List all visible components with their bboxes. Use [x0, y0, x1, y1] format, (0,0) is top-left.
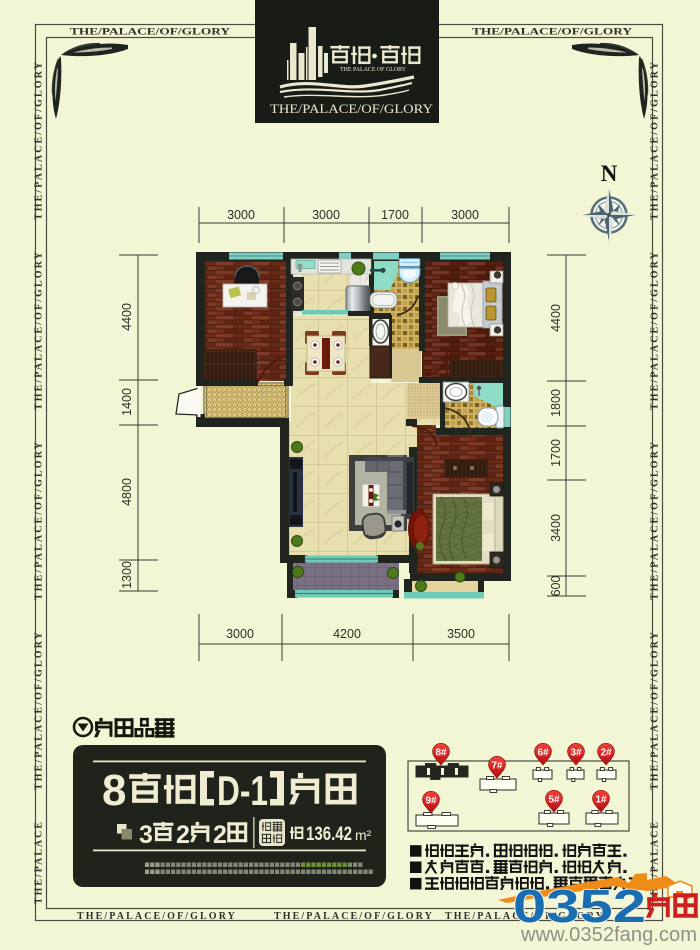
svg-text:THE/PALACE: THE/PALACE — [34, 820, 45, 904]
svg-text:4200: 4200 — [333, 627, 361, 641]
svg-text:1#: 1# — [595, 795, 607, 806]
svg-text:2: 2 — [213, 821, 227, 849]
svg-text:THE PALACE OF GLORY: THE PALACE OF GLORY — [340, 66, 406, 73]
svg-text:THE/PALACE/OF/GLORY: THE/PALACE/OF/GLORY — [650, 630, 661, 790]
svg-text:4800: 4800 — [120, 478, 134, 506]
svg-text:3500: 3500 — [447, 627, 475, 641]
svg-text:THE/PALACE/OF/GLORY: THE/PALACE/OF/GLORY — [34, 440, 45, 600]
svg-text:8: 8 — [102, 766, 126, 815]
svg-text:3000: 3000 — [226, 627, 254, 641]
svg-text:THE/PALACE: THE/PALACE — [650, 820, 661, 904]
svg-text:THE/PALACE/OF/GLORY: THE/PALACE/OF/GLORY — [650, 60, 661, 220]
svg-text:1700: 1700 — [381, 208, 409, 222]
svg-text:THE/PALACE/OF/GLORY: THE/PALACE/OF/GLORY — [34, 250, 45, 410]
svg-text:D-1: D-1 — [217, 767, 268, 814]
svg-text:3: 3 — [139, 821, 153, 849]
svg-text:1300: 1300 — [120, 561, 134, 589]
svg-text:3000: 3000 — [227, 208, 255, 222]
svg-text:9#: 9# — [425, 796, 437, 807]
svg-text:1800: 1800 — [549, 389, 563, 417]
svg-text:8#: 8# — [435, 748, 447, 759]
svg-text:1700: 1700 — [549, 439, 563, 467]
svg-text:THE/PALACE/OF/GLORY: THE/PALACE/OF/GLORY — [650, 440, 661, 600]
svg-text:7#: 7# — [491, 761, 503, 772]
svg-text:4400: 4400 — [549, 304, 563, 332]
svg-text:3000: 3000 — [312, 208, 340, 222]
svg-text:THE/PALACE/OF/GLORY: THE/PALACE/OF/GLORY — [34, 60, 45, 220]
svg-text:THE/PALACE/OF/GLORY: THE/PALACE/OF/GLORY — [34, 630, 45, 790]
svg-text:600: 600 — [549, 576, 563, 597]
svg-text:3400: 3400 — [549, 514, 563, 542]
svg-text:THE/PALACE/OF/GLORY: THE/PALACE/OF/GLORY — [650, 250, 661, 410]
svg-text:THE/PALACE/OF/GLORY: THE/PALACE/OF/GLORY — [274, 911, 434, 922]
svg-text:m²: m² — [355, 827, 372, 843]
svg-text:2#: 2# — [600, 748, 612, 759]
svg-text:THE/PALACE/OF/GLORY: THE/PALACE/OF/GLORY — [270, 102, 433, 116]
svg-text:3#: 3# — [570, 748, 582, 759]
svg-text:6#: 6# — [537, 748, 549, 759]
svg-text:THE/PALACE/OF/GLORY: THE/PALACE/OF/GLORY — [77, 911, 237, 922]
svg-text:THE/PALACE/OF/GLORY: THE/PALACE/OF/GLORY — [472, 28, 632, 38]
svg-text:136.42: 136.42 — [306, 824, 352, 845]
svg-text:1400: 1400 — [120, 388, 134, 416]
svg-text:3000: 3000 — [451, 208, 479, 222]
svg-text:THE/PALACE/OF/GLORY: THE/PALACE/OF/GLORY — [70, 28, 230, 38]
svg-text:N: N — [601, 161, 618, 186]
svg-text:www.0352fang.com: www.0352fang.com — [520, 924, 697, 946]
svg-text:5#: 5# — [548, 795, 560, 806]
svg-text:2: 2 — [176, 821, 190, 849]
svg-text:4400: 4400 — [120, 303, 134, 331]
